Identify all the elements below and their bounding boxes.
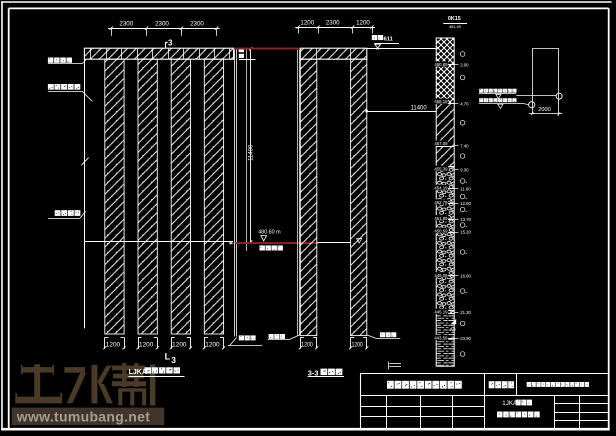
- svg-text:1200: 1200: [300, 20, 314, 27]
- svg-text:12.60: 12.60: [460, 201, 471, 206]
- svg-text:11400: 11400: [249, 144, 255, 161]
- svg-text:2300: 2300: [119, 21, 133, 28]
- svg-text:1200: 1200: [172, 341, 187, 348]
- svg-text:1200: 1200: [352, 341, 364, 348]
- svg-text:461.49: 461.49: [449, 24, 461, 29]
- svg-text:2000: 2000: [538, 107, 550, 113]
- svg-text:3: 3: [168, 39, 173, 48]
- svg-text:458.19: 458.19: [434, 99, 448, 104]
- svg-text:3-3: 3-3: [308, 368, 319, 377]
- svg-text:457.09: 457.09: [434, 141, 448, 146]
- svg-text:7.40: 7.40: [460, 144, 469, 149]
- svg-text:L: L: [165, 351, 171, 361]
- svg-text:0K15: 0K15: [448, 16, 461, 22]
- svg-text:7.0: 7.0: [450, 327, 456, 332]
- svg-text:1200: 1200: [106, 341, 121, 348]
- svg-text:LJKA: LJKA: [129, 369, 147, 376]
- svg-text:611: 611: [384, 36, 393, 42]
- svg-text:452.79: 452.79: [434, 200, 448, 205]
- svg-text:4.70: 4.70: [460, 102, 469, 107]
- svg-text:16.60: 16.60: [460, 273, 471, 278]
- svg-text:2300: 2300: [190, 21, 204, 28]
- svg-text:480.60 m: 480.60 m: [258, 229, 281, 235]
- svg-text:450.69: 450.69: [434, 229, 448, 234]
- svg-text:460.89: 460.89: [434, 62, 448, 67]
- svg-text:1200: 1200: [205, 341, 220, 348]
- svg-text:www.tumubang.net: www.tumubang.net: [16, 409, 150, 425]
- svg-text:2300: 2300: [155, 21, 169, 28]
- svg-text:1200: 1200: [301, 341, 313, 348]
- svg-text:445.19: 445.19: [434, 309, 448, 314]
- svg-text:21.30: 21.30: [460, 310, 471, 315]
- svg-text:15.20: 15.20: [460, 230, 471, 235]
- svg-text:448.09: 448.09: [434, 273, 448, 278]
- svg-text:11400: 11400: [410, 105, 427, 111]
- svg-text:1200: 1200: [139, 341, 154, 348]
- svg-text:9.30: 9.30: [460, 168, 469, 173]
- svg-text:13.70: 13.70: [460, 217, 471, 222]
- svg-text:2300: 2300: [326, 20, 340, 27]
- svg-text:1200: 1200: [356, 20, 370, 27]
- svg-text:23.90: 23.90: [460, 336, 471, 341]
- svg-text:3.00: 3.00: [460, 63, 469, 68]
- svg-text:443.59: 443.59: [434, 335, 448, 340]
- svg-text:11.60: 11.60: [460, 187, 471, 192]
- svg-text:451.99: 451.99: [434, 216, 448, 221]
- svg-text:454.19: 454.19: [434, 186, 448, 191]
- svg-text:3: 3: [171, 355, 176, 365]
- svg-text:455.39: 455.39: [434, 166, 448, 171]
